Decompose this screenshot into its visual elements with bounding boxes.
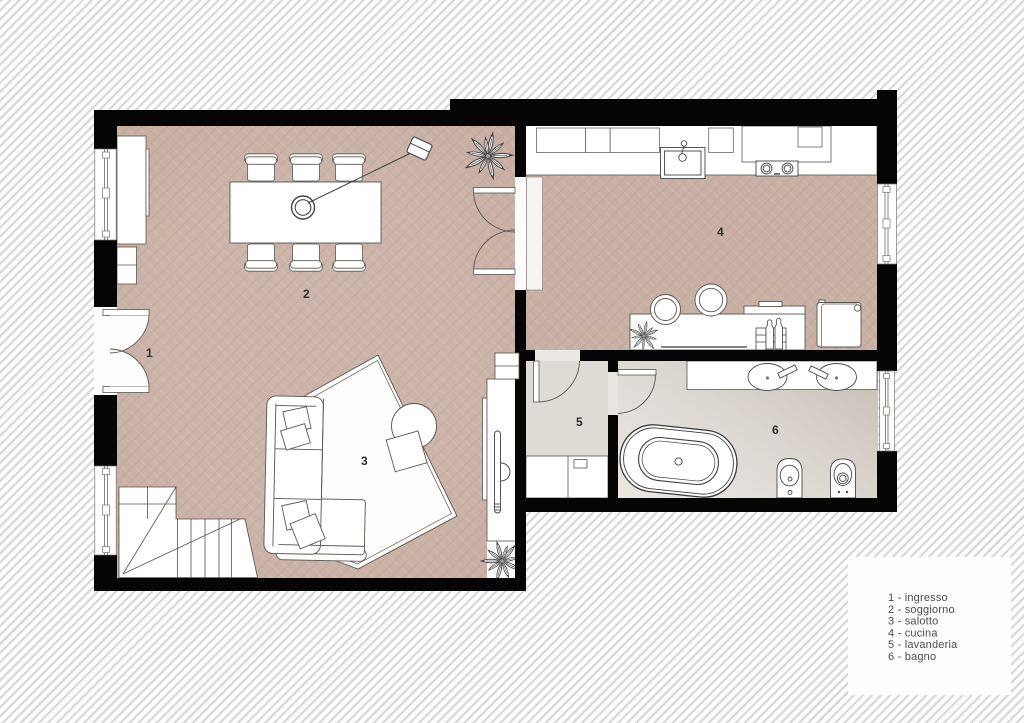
svg-text:4 - cucina: 4 - cucina [888,627,938,639]
svg-text:6 - bagno: 6 - bagno [888,651,936,663]
svg-text:5 - lavanderia: 5 - lavanderia [888,639,958,651]
svg-text:6: 6 [772,423,779,437]
svg-text:2: 2 [303,287,310,301]
svg-text:1: 1 [146,346,153,360]
svg-text:5: 5 [576,415,583,429]
svg-text:3: 3 [361,454,368,468]
svg-text:4: 4 [717,225,724,239]
svg-text:1 - ingresso: 1 - ingresso [888,592,948,604]
svg-text:2 - soggiorno: 2 - soggiorno [888,604,955,616]
svg-text:3 - salotto: 3 - salotto [888,616,939,628]
